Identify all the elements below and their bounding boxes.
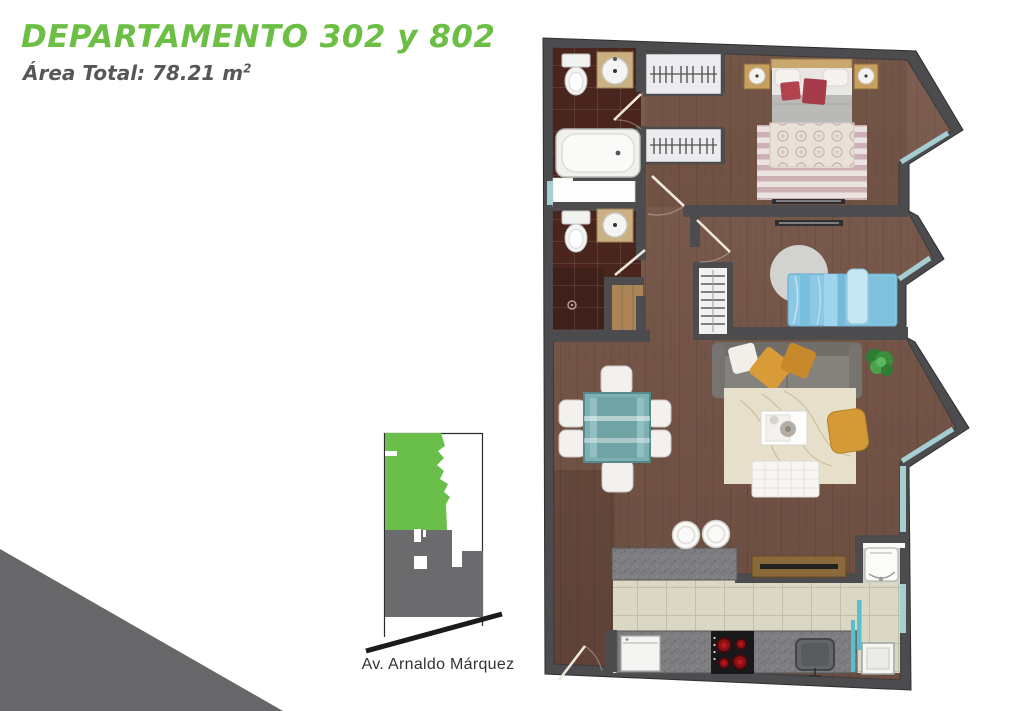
cooktop-icon: [711, 631, 754, 674]
coffee-table-icon: [761, 411, 807, 445]
peninsula-counter-icon: [612, 548, 737, 580]
corner-triangle: [0, 549, 283, 711]
tv-console-icon: [752, 556, 846, 577]
site-map-buildings: [385, 530, 483, 617]
water-heater-icon: [865, 548, 898, 581]
utility-shelf: [863, 543, 905, 548]
nightstand-icon: [854, 64, 878, 89]
wardrobe-icon: [645, 128, 722, 163]
bathtub-icon: [556, 129, 640, 177]
sink-vanity-icon: [597, 52, 633, 88]
sink-vanity-icon: [597, 209, 633, 242]
bathroom-fixtures: [556, 52, 640, 252]
pouf-icon: [826, 408, 869, 455]
nightstand-icon: [744, 64, 770, 89]
street-line: [366, 614, 502, 651]
site-map-highlighted-building: [385, 433, 450, 530]
wardrobe-icon: [645, 53, 722, 95]
street-label: Av. Arnaldo Márquez: [348, 656, 528, 674]
floor-plan: [543, 38, 973, 693]
kitchen-sink-icon: [796, 639, 834, 676]
site-map: [366, 433, 502, 651]
ladder-shelf-icon: [693, 262, 733, 340]
double-bed-icon: [770, 59, 854, 168]
fridge-icon: [862, 643, 894, 674]
master-bedroom: [744, 59, 878, 204]
washer-icon: [621, 636, 660, 671]
dining-table-icon: [584, 393, 650, 462]
single-bed-icon: [788, 269, 897, 326]
site-map-notch: [385, 451, 397, 456]
tufted-bench-icon: [752, 461, 819, 497]
floor-plan-graphic: [0, 0, 1011, 711]
